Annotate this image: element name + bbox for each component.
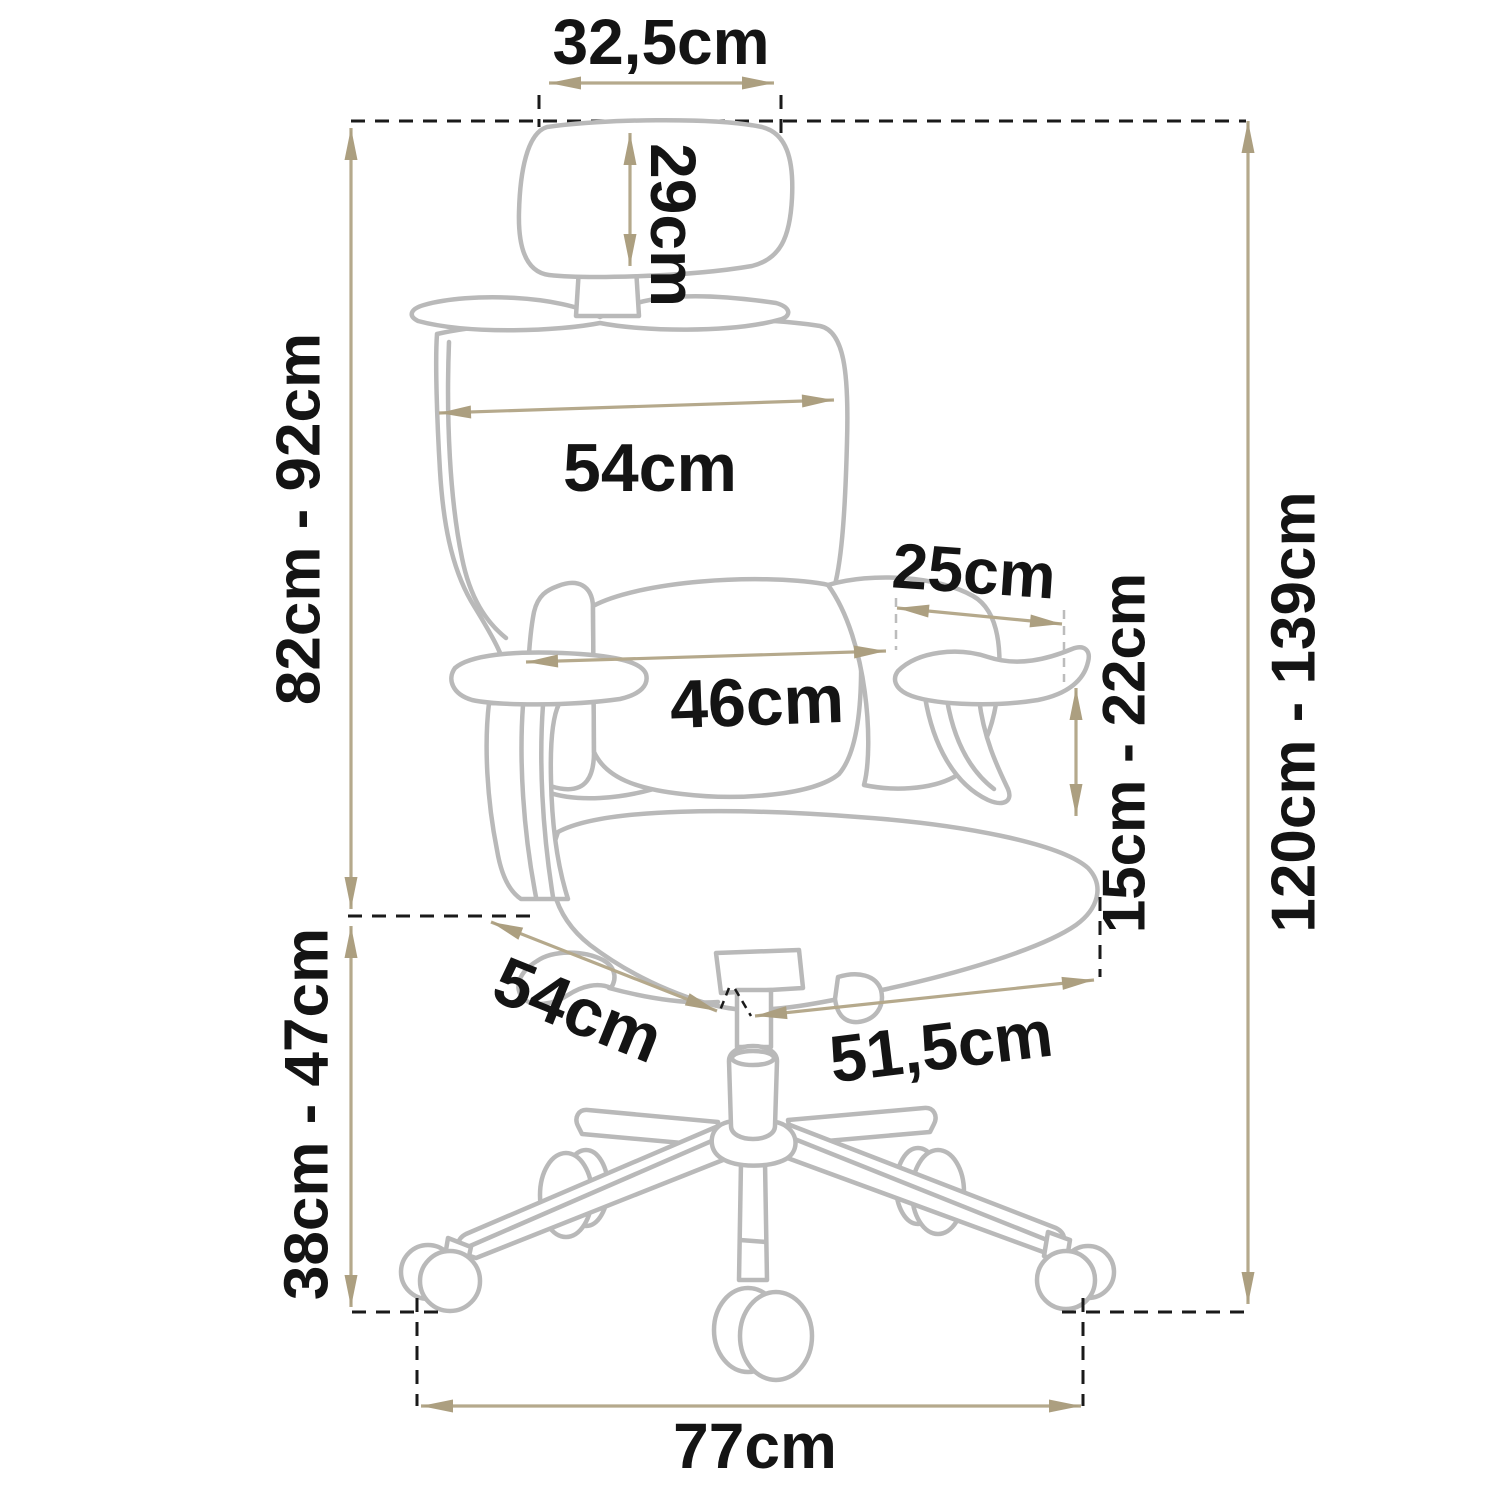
seat-outline bbox=[551, 811, 1097, 1010]
caster-front bbox=[740, 1292, 812, 1380]
caster-left bbox=[420, 1251, 480, 1311]
label-seat-height: 38cm - 47cm bbox=[273, 928, 342, 1300]
gas-lift-post bbox=[737, 990, 771, 1047]
label-headrest-width: 32,5cm bbox=[552, 6, 769, 78]
label-total-height: 120cm - 139cm bbox=[1260, 491, 1329, 932]
diagram-canvas: 32,5cm 29cm 54cm 46cm 25cm 15cm - 22cm 8… bbox=[0, 0, 1500, 1500]
chair-dimension-diagram: 32,5cm 29cm 54cm 46cm 25cm 15cm - 22cm 8… bbox=[0, 0, 1500, 1500]
chair-line-art bbox=[401, 120, 1114, 1380]
mechanism-part bbox=[835, 974, 882, 1022]
label-headrest-height: 29cm bbox=[637, 143, 709, 307]
right-armrest-pad bbox=[895, 647, 1089, 704]
seat-plate bbox=[716, 950, 803, 993]
label-base-width: 77cm bbox=[673, 1410, 837, 1482]
label-armrest-height: 15cm - 22cm bbox=[1091, 573, 1158, 933]
label-backrest-width: 54cm bbox=[563, 430, 737, 506]
base-leg-front-joint bbox=[740, 1240, 766, 1242]
caster-right bbox=[1037, 1251, 1095, 1309]
label-armrest-pad: 25cm bbox=[890, 529, 1058, 612]
label-backrest-height: 82cm - 92cm bbox=[265, 333, 334, 705]
label-lumbar-width: 46cm bbox=[669, 661, 845, 743]
base-leg-front bbox=[739, 1162, 767, 1280]
